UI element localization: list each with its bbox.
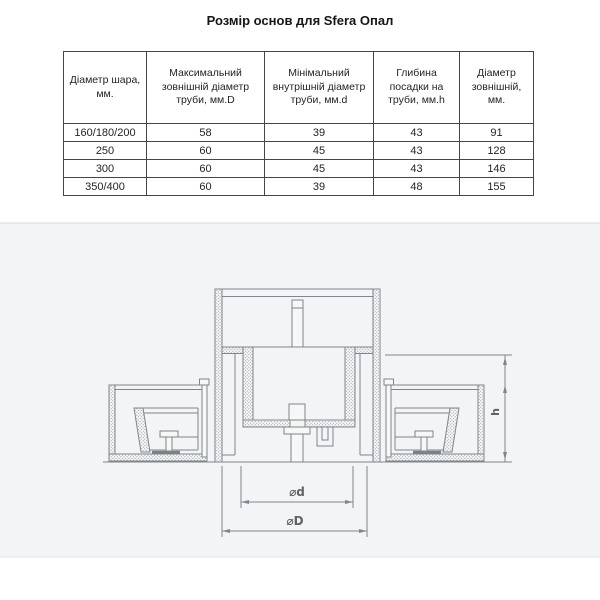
- outer-diameter-label: ⌀D: [286, 514, 303, 528]
- spec-sheet-page: Розмір основ для Sfera Опал Діаметр шара…: [0, 0, 600, 600]
- drawing-background: [0, 223, 600, 557]
- technical-drawing: ⌀d ⌀D h: [0, 0, 600, 600]
- seat-depth-label: h: [489, 408, 502, 416]
- inner-diameter-label: ⌀d: [289, 485, 305, 499]
- top-pin: [292, 300, 303, 347]
